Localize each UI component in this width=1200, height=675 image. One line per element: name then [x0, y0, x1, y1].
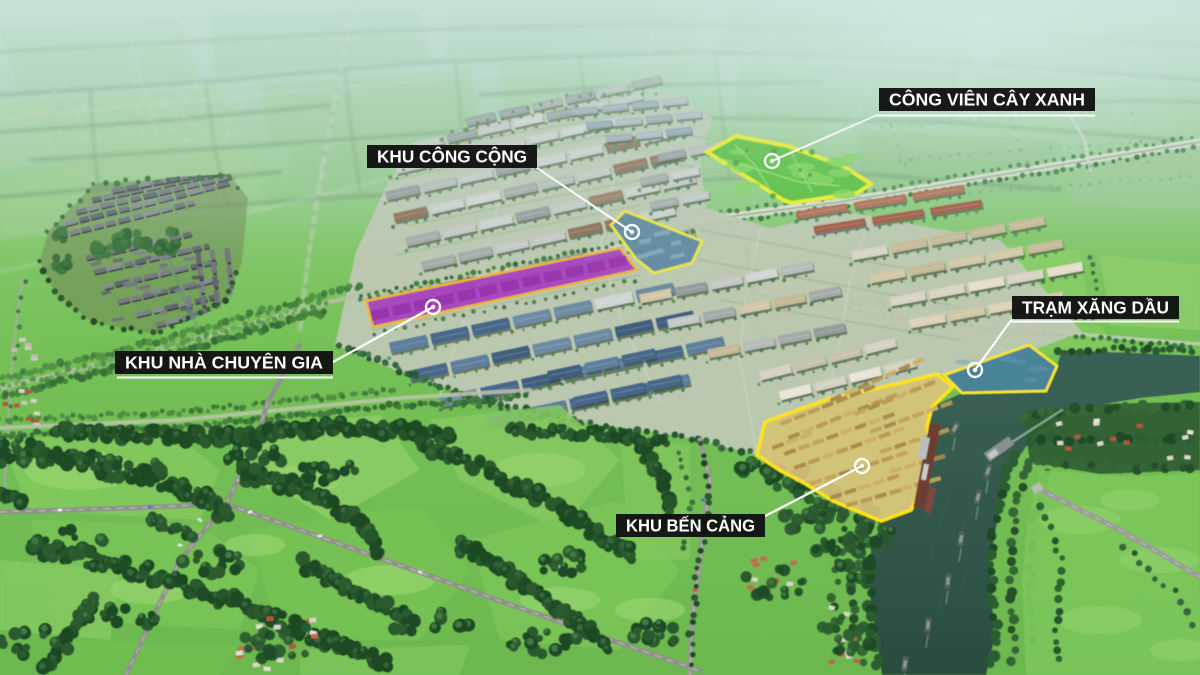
- svg-text:KHU CÔNG CỘNG: KHU CÔNG CỘNG: [377, 146, 527, 167]
- svg-text:TRẠM XĂNG DẦU: TRẠM XĂNG DẦU: [1022, 297, 1169, 318]
- svg-text:KHU NHÀ CHUYÊN GIA: KHU NHÀ CHUYÊN GIA: [125, 352, 323, 373]
- svg-text:CÔNG VIÊN CÂY XANH: CÔNG VIÊN CÂY XANH: [889, 89, 1085, 110]
- svg-text:KHU BẾN CẢNG: KHU BẾN CẢNG: [626, 515, 755, 536]
